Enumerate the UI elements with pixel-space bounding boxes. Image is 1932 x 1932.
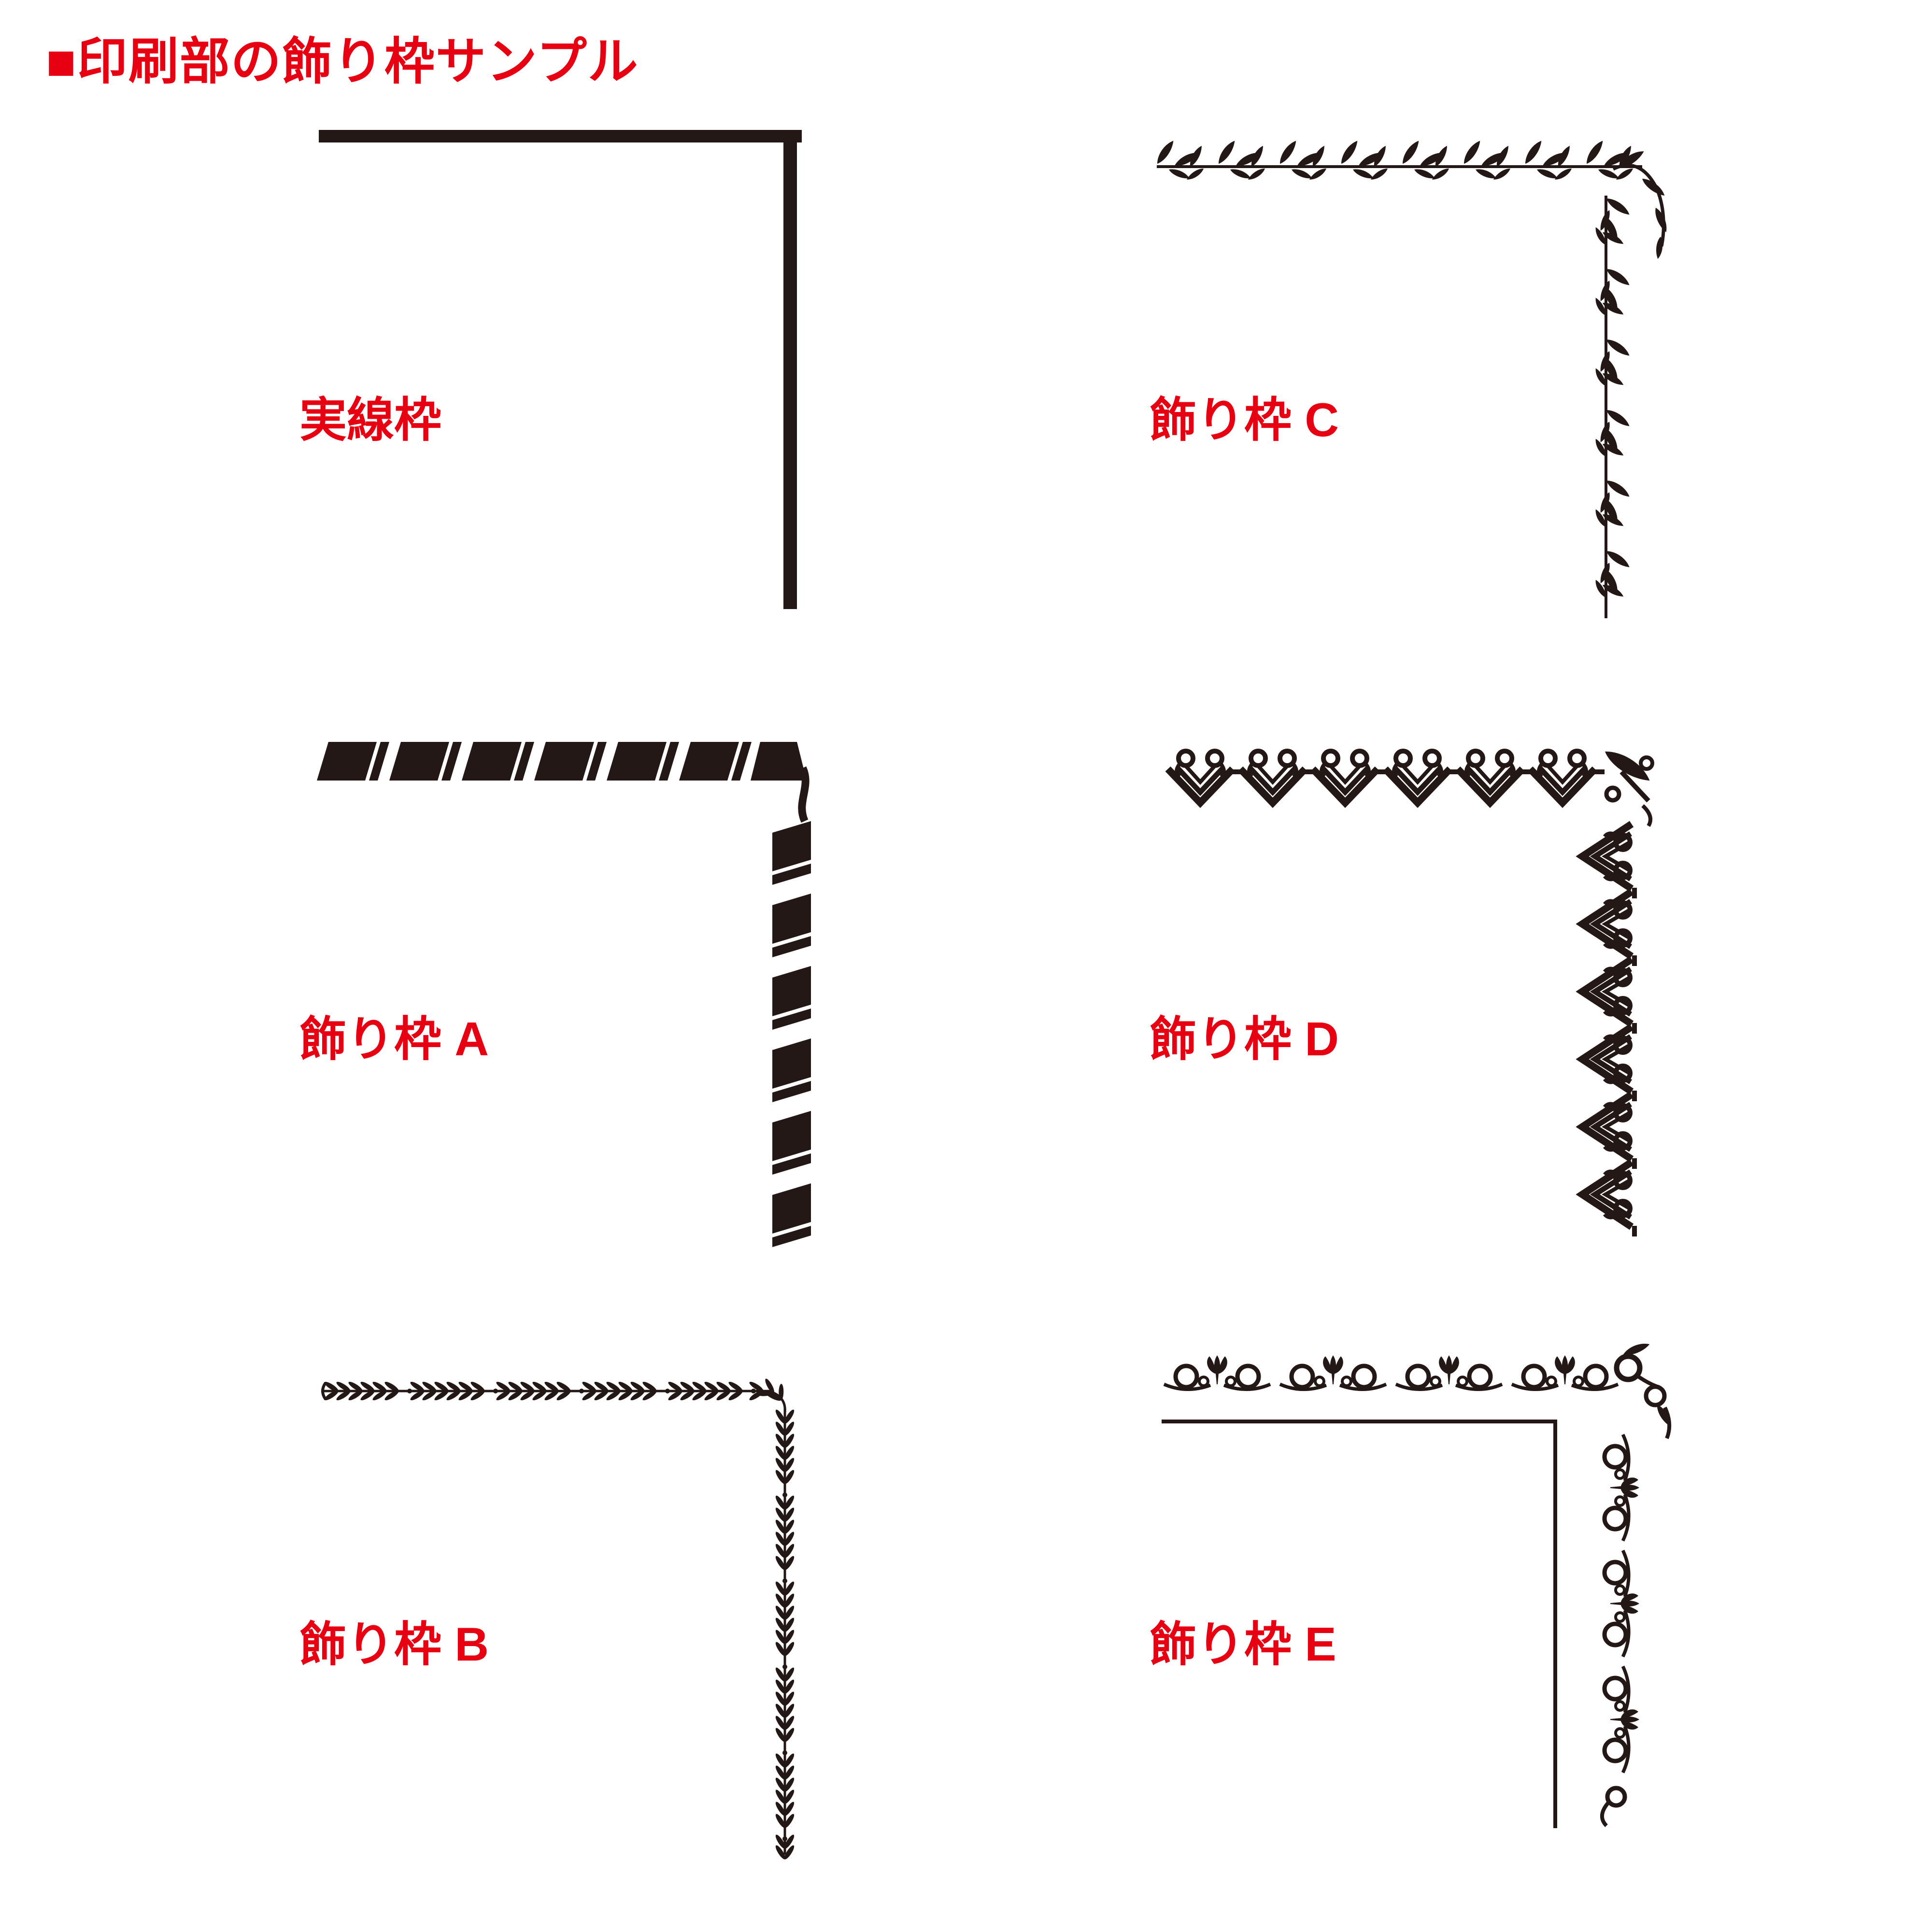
sample-label-frame-d: 飾り枠 D xyxy=(1150,1001,1339,1069)
sample-label-solid-frame: 実線枠 xyxy=(299,382,441,450)
leaf-vine-corner-border-graphic xyxy=(1154,123,1710,635)
solid-line-corner-border-graphic xyxy=(314,123,807,611)
sample-label-frame-a: 飾り枠 A xyxy=(299,1001,489,1069)
sample-label-frame-c: 飾り枠 C xyxy=(1150,382,1339,450)
decorative-frame-samples-sheet: ■印刷部の飾り枠サンプル xyxy=(0,0,1932,1932)
scroll-heart-corner-border-graphic xyxy=(1159,739,1700,1261)
twisted-ribbon-corner-border-graphic xyxy=(314,739,840,1261)
page-title: ■印刷部の飾り枠サンプル xyxy=(46,20,639,93)
sample-label-frame-e: 飾り枠 E xyxy=(1150,1606,1336,1675)
sample-label-frame-b: 飾り枠 B xyxy=(299,1606,489,1675)
